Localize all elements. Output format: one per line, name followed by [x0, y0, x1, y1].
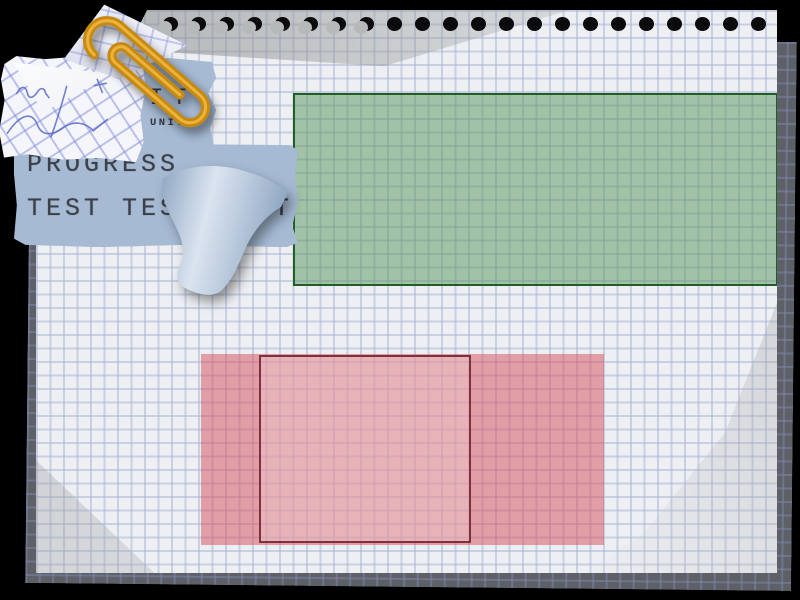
paperclip-icon[interactable]: [30, 0, 250, 160]
scrapbook-canvas: UNIT A UNIT A PROGRESS TEST TEST TEST: [0, 0, 800, 600]
binding-hole: [583, 17, 598, 31]
binding-hole: [639, 17, 654, 31]
binding-hole: [723, 17, 738, 31]
binding-hole: [751, 17, 766, 31]
binding-hole: [695, 17, 710, 31]
binding-hole: [471, 17, 486, 31]
binding-hole: [499, 17, 514, 31]
binding-hole: [527, 17, 542, 31]
binding-hole: [443, 17, 458, 31]
binding-hole: [667, 17, 682, 31]
binding-hole: [611, 17, 626, 31]
binding-hole: [387, 17, 402, 31]
torn-paper-curl: [146, 160, 301, 305]
binding-hole: [275, 17, 290, 31]
binding-hole: [359, 17, 374, 31]
pink-inner-panel[interactable]: [259, 355, 471, 543]
green-content-panel[interactable]: [293, 93, 777, 286]
binding-hole: [331, 17, 346, 31]
binding-hole: [415, 17, 430, 31]
binding-hole: [303, 17, 318, 31]
binding-hole: [555, 17, 570, 31]
